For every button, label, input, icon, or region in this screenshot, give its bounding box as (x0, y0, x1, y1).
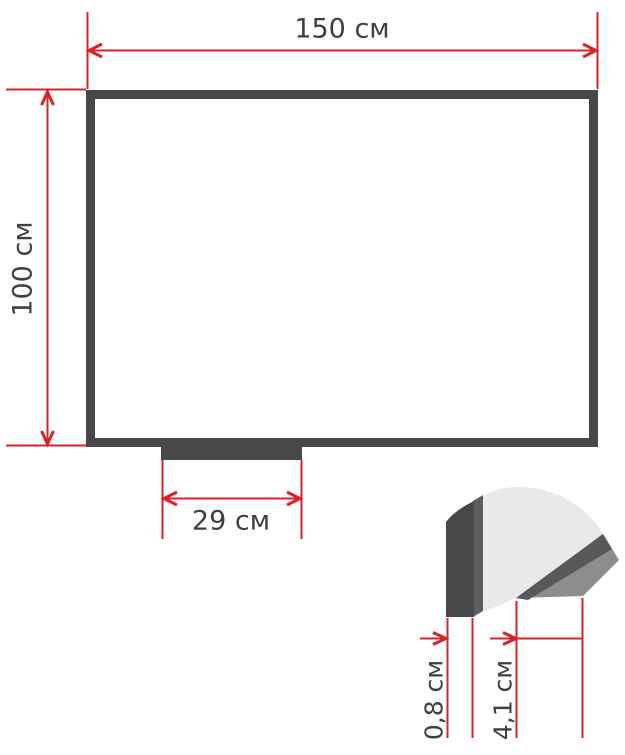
board-height-label: 100 см (10, 221, 37, 316)
profile-thickness-label: 0,8 см (422, 660, 447, 740)
board-width-label: 150 см (294, 16, 389, 43)
profile-detail (446, 487, 619, 617)
profile-frame-face (446, 501, 474, 617)
tray-width-label: 29 см (192, 508, 270, 535)
marker-tray (161, 447, 302, 460)
profile-side-face (473, 495, 483, 617)
dimension-diagram: 150 см 100 см 29 см 0,8 см 4,1 см (0, 0, 625, 755)
diagram-linework (0, 0, 625, 755)
board (91, 95, 594, 461)
board-outline (91, 95, 594, 443)
profile-depth-label: 4,1 см (491, 660, 516, 740)
